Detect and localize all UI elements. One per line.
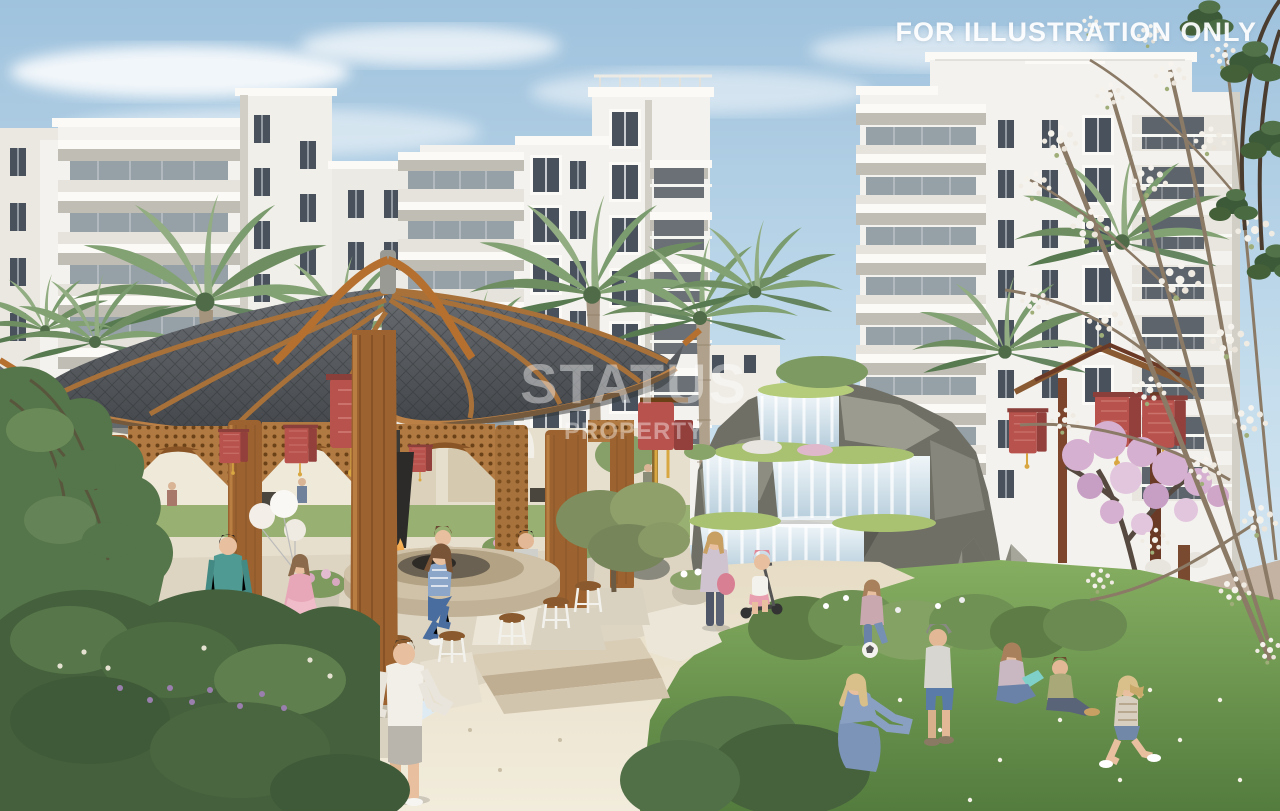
watermark: STATUS PROPERTY [484, 356, 784, 446]
roof-finial [380, 250, 396, 294]
watermark-line1: STATUS [484, 356, 784, 412]
architectural-rendering: FOR ILLUSTRATION ONLY STATUS PROPERTY [0, 0, 1280, 811]
disclaimer-text: FOR ILLUSTRATION ONLY [896, 17, 1258, 48]
watermark-line2: PROPERTY [484, 418, 784, 446]
